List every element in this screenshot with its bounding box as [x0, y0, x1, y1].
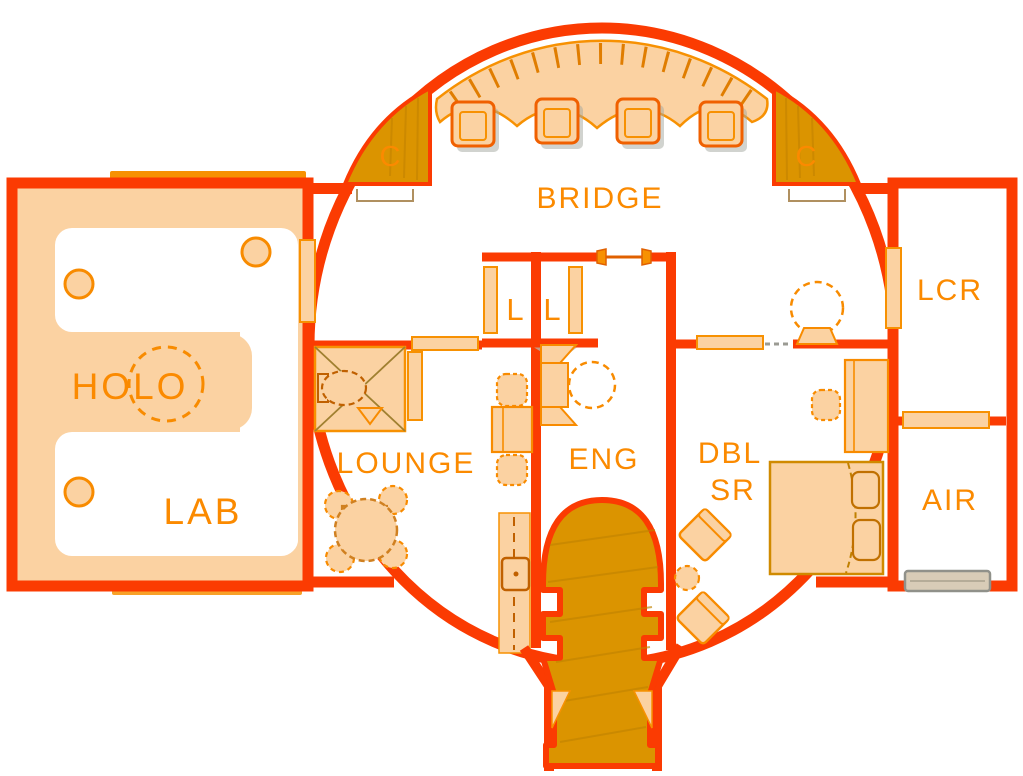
- locker-left-label: L: [506, 292, 523, 327]
- lounge-table: [335, 499, 397, 561]
- lcr-label: LCR: [917, 274, 983, 307]
- lounge-label: LOUNGE: [337, 447, 476, 480]
- stateroom-shelf: [697, 336, 763, 349]
- double-bed: [770, 462, 883, 574]
- workstation-desk: [492, 407, 532, 452]
- deckplan: C C BRIDGE HOLO LAB LCR AI: [0, 0, 1023, 776]
- pillow: [852, 472, 879, 508]
- lab-door-panel: [300, 240, 315, 322]
- side-table: [675, 566, 699, 590]
- workstation-chair: [497, 455, 527, 485]
- lab-stool: [65, 478, 93, 506]
- lcr-air-divider-panel: [903, 412, 989, 428]
- air-label: AIR: [922, 484, 978, 517]
- fresher-door-panel: [408, 352, 422, 420]
- bridge-chair: [452, 102, 499, 152]
- closet-right: [774, 88, 859, 201]
- eng-label: ENG: [568, 443, 639, 476]
- lcr-door-panel: [886, 248, 901, 328]
- bridge-chair: [617, 99, 664, 149]
- workstation-chair: [497, 374, 527, 406]
- engine-body: [543, 500, 661, 766]
- lab-label: LAB: [164, 491, 243, 532]
- lab-stool: [65, 270, 93, 298]
- engine: [524, 500, 681, 771]
- bridge-label: BRIDGE: [536, 182, 663, 215]
- closet-left-label: C: [380, 141, 401, 173]
- locker-panel-left: [484, 267, 497, 333]
- locker-right-label: L: [543, 292, 560, 327]
- fresher: [315, 347, 405, 431]
- desk-chair: [812, 390, 840, 420]
- bridge-chair: [536, 99, 583, 149]
- corridor-strip: [499, 513, 530, 653]
- pillow: [853, 520, 880, 560]
- closet-right-label: C: [796, 141, 817, 173]
- workstation: [492, 374, 532, 485]
- bridge-chair: [700, 102, 747, 152]
- stateroom-label-line2: SR: [710, 474, 756, 507]
- right-module-walls: [893, 183, 1012, 586]
- basin: [797, 328, 837, 344]
- holo-label: HOLO: [72, 366, 189, 407]
- stateroom-label-line1: DBL: [698, 437, 762, 470]
- lounge-shelf: [412, 337, 478, 350]
- deckplan-svg: C C BRIDGE HOLO LAB LCR AI: [0, 0, 1023, 776]
- lab-stool: [242, 238, 270, 266]
- lounge-table-set: [325, 486, 407, 572]
- toilet: [322, 371, 366, 405]
- locker-panel-right: [569, 267, 582, 333]
- stateroom-desk: [845, 360, 888, 452]
